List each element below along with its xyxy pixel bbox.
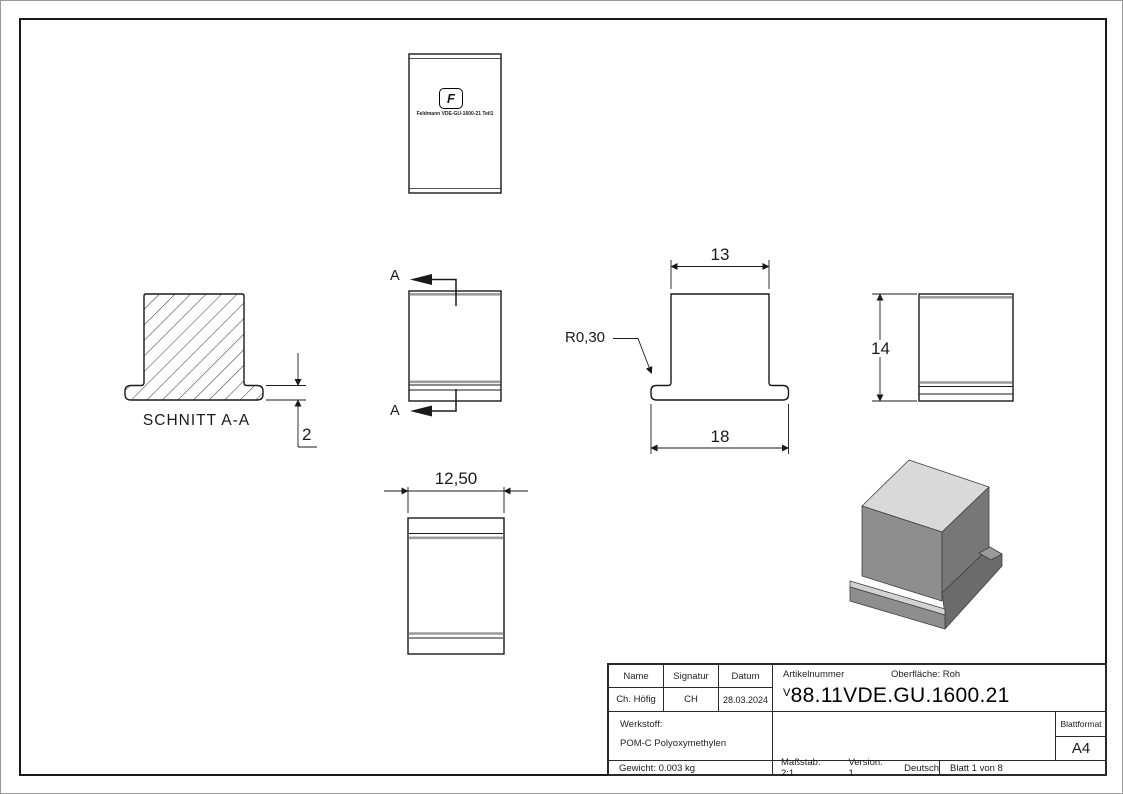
dim-bottom-width: 12,50 — [414, 470, 498, 487]
date-value-cell: 28.03.2024 — [718, 687, 773, 712]
section-profile — [125, 294, 263, 400]
weight-value: Gewicht: 0.003 kg — [619, 763, 695, 774]
format-value: A4 — [1072, 740, 1090, 757]
date-label: Datum — [732, 671, 760, 682]
name-value-cell: Ch. Höfig — [608, 687, 664, 712]
format-label-cell: Blattformat — [1055, 711, 1107, 737]
article-label: Artikelnummer — [783, 669, 844, 680]
version-value: Version: 1 — [848, 757, 886, 779]
dim-flange-width: 18 — [696, 428, 744, 445]
section-marker-bottom: A — [390, 404, 400, 419]
drawing-sheet: F Feldmann VDE-GU-1600-21 Teil1 SCHNITT … — [0, 0, 1123, 794]
dim-flange-thickness: 2 — [302, 426, 311, 443]
dim-height: 14 — [866, 340, 895, 357]
bottom-view — [384, 487, 528, 654]
date-label-cell: Datum — [718, 664, 773, 688]
material-label: Werkstoff: — [620, 719, 662, 730]
front-view — [409, 274, 501, 417]
dim-body-width: 13 — [696, 246, 744, 263]
sheet-cell: Blatt 1 von 8 — [939, 760, 1107, 776]
material-cell: Werkstoff: POM-C Polyoxymethylen — [608, 711, 773, 761]
title-block: Name Signatur Datum Ch. Höfig CH 28.03.2… — [607, 663, 1106, 775]
signature-label-cell: Signatur — [663, 664, 719, 688]
scale-cell: Maßstab: 2:1 Version: 1 Deutsch — [772, 760, 940, 776]
article-number-value: 88.11VDE.GU.1600.21 — [791, 684, 1010, 707]
sheet-value: Blatt 1 von 8 — [950, 763, 1003, 774]
article-number: V88.11VDE.GU.1600.21 — [783, 684, 1010, 708]
material-value: POM-C Polyoxymethylen — [620, 738, 726, 749]
profile-view — [613, 260, 789, 454]
scale-value: Maßstab: 2:1 — [781, 757, 830, 779]
section-view-label: SCHNITT A-A — [134, 413, 259, 429]
top-view — [409, 54, 501, 193]
article-prefix: V — [783, 687, 791, 699]
profile-outline — [651, 294, 789, 400]
surface-label: Oberfläche: Roh — [891, 669, 960, 680]
name-value: Ch. Höfig — [616, 694, 656, 705]
signature-label: Signatur — [673, 671, 708, 682]
weight-cell: Gewicht: 0.003 kg — [608, 760, 773, 776]
empty-cell — [772, 711, 1056, 761]
isometric-view — [850, 460, 1002, 629]
format-label: Blattformat — [1060, 719, 1101, 729]
section-marker-top: A — [390, 269, 400, 284]
format-value-cell: A4 — [1055, 736, 1107, 761]
name-label: Name — [623, 671, 648, 682]
signature-value: CH — [684, 694, 698, 705]
top-view-caption: Feldmann VDE-GU-1600-21 Teil1 — [410, 112, 500, 117]
feldmann-logo-icon: F — [439, 88, 463, 109]
article-cell: Artikelnummer Oberfläche: Roh V88.11VDE.… — [772, 664, 1107, 712]
name-label-cell: Name — [608, 664, 664, 688]
language-value: Deutsch — [904, 763, 939, 774]
radius-label: R0,30 — [565, 330, 605, 345]
date-value: 28.03.2024 — [723, 695, 768, 705]
signature-value-cell: CH — [663, 687, 719, 712]
